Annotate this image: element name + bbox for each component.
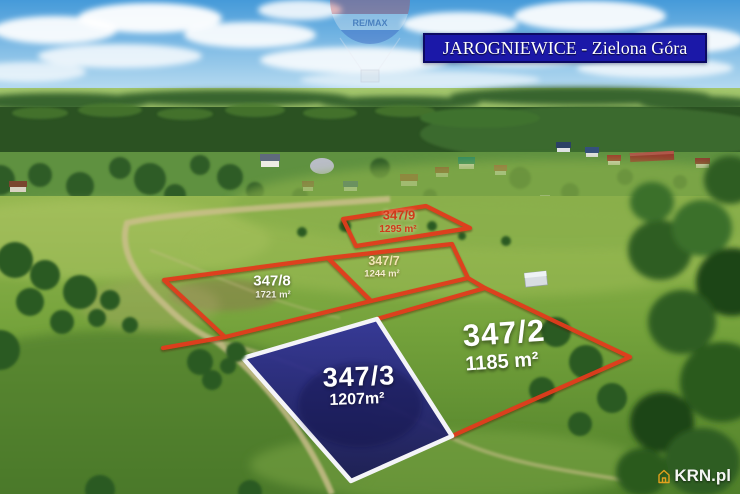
listing-photo: RE/MAX JAROGNIEWICE - Zielona Góra 347/9… [0,0,740,494]
shed [524,271,547,287]
aerial-photo-background: RE/MAX [0,0,740,494]
location-banner-title: JAROGNIEWICE - Zielona Góra [443,38,687,59]
remax-logo-text: RE/MAX [352,18,387,28]
portal-watermark: KRN.pl [657,466,731,486]
portal-watermark-text: KRN.pl [674,466,731,486]
house-icon [657,469,671,484]
location-banner: JAROGNIEWICE - Zielona Góra [423,33,707,63]
